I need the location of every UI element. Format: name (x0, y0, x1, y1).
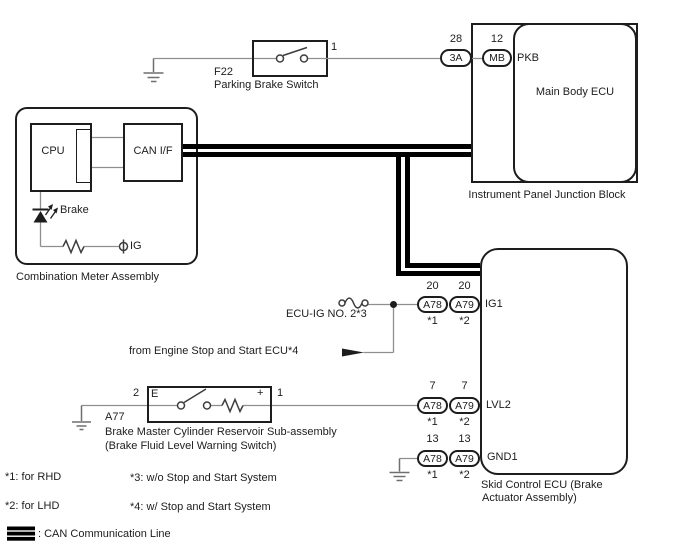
resistor-icon-meter (63, 241, 84, 253)
footnote-1: *1: for RHD (5, 471, 61, 483)
can-if-label: CAN I/F (123, 145, 183, 157)
resistor-icon-reservoir (222, 400, 243, 412)
reservoir-name-1: Brake Master Cylinder Reservoir Sub-asse… (105, 426, 337, 438)
ground-icon-reservoir (72, 406, 91, 430)
reservoir-pin-1: 1 (277, 387, 283, 399)
junction-dot (390, 301, 397, 308)
can-line-legend-icon (7, 527, 35, 541)
pin-gnd1-left: 13 (417, 433, 448, 445)
pin-gnd1-right: 13 (449, 433, 480, 445)
junction-block-label: Instrument Panel Junction Block (461, 189, 633, 201)
pin-ig1-right: 20 (449, 280, 480, 292)
parking-brake-switch-pin: 1 (331, 41, 337, 53)
parking-brake-switch-code: F22 (214, 66, 233, 78)
connector-a79-gnd1: A79 (449, 450, 480, 467)
main-body-ecu-label: Main Body ECU (513, 86, 637, 98)
connector-a78-ig1: A78 (417, 296, 448, 313)
reservoir-terminal-plus: + (257, 387, 263, 399)
note-ig1-left: *1 (417, 315, 448, 327)
legend-can-label: : CAN Communication Line (38, 528, 171, 540)
reservoir-name-2: (Brake Fluid Level Warning Switch) (105, 440, 276, 452)
ground-icon-gnd1 (390, 459, 410, 481)
note-ig1-right: *2 (449, 315, 480, 327)
cpu-label: CPU (30, 145, 76, 157)
reservoir-code: A77 (105, 411, 125, 423)
note-lvl2-left: *1 (417, 416, 448, 428)
pin-28: 28 (440, 33, 472, 45)
signal-pkb: PKB (517, 52, 539, 64)
pin-lvl2-left: 7 (417, 380, 448, 392)
can-branch-horizontal-outer (396, 271, 480, 276)
engine-ecu-note: from Engine Stop and Start ECU*4 (129, 345, 298, 357)
ground-icon-parking-brake (144, 59, 164, 82)
switch-icon-reservoir (178, 389, 211, 409)
footnote-3: *3: w/o Stop and Start System (130, 472, 277, 484)
skid-control-ecu-label-2: Actuator Assembly) (482, 492, 577, 504)
pin-ig1-left: 20 (417, 280, 448, 292)
reservoir-terminal-e: E (151, 388, 158, 400)
connector-a79-lvl2: A79 (449, 397, 480, 414)
can-line-bottom (183, 152, 471, 157)
connector-a79-ig1: A79 (449, 296, 480, 313)
led-icon-brake (33, 204, 59, 223)
can-communication-lines (183, 144, 480, 276)
parking-brake-switch-name: Parking Brake Switch (214, 79, 319, 91)
signal-gnd1: GND1 (487, 451, 518, 463)
connector-a78-lvl2: A78 (417, 397, 448, 414)
footnote-2: *2: for LHD (5, 500, 59, 512)
can-line-top (183, 144, 471, 149)
pin-lvl2-right: 7 (449, 380, 480, 392)
note-gnd1-left: *1 (417, 469, 448, 481)
ig-terminal-icon (120, 240, 128, 254)
combination-meter-label: Combination Meter Assembly (16, 271, 159, 283)
note-lvl2-right: *2 (449, 416, 480, 428)
connector-mb: MB (482, 49, 512, 67)
connector-3a: 3A (440, 49, 472, 67)
can-branch-horizontal-inner (405, 263, 480, 268)
connector-a78-gnd1: A78 (417, 450, 448, 467)
can-branch-vertical-inner (405, 152, 410, 268)
wiring-diagram: 3A MB A78 A79 A78 A79 A78 A79 F22 Parkin… (0, 0, 688, 560)
arrow-icon-engine-ecu (342, 349, 364, 357)
skid-control-ecu-label-1: Skid Control ECU (Brake (481, 479, 603, 491)
footnote-4: *4: w/ Stop and Start System (130, 501, 271, 513)
note-gnd1-right: *2 (449, 469, 480, 481)
wire-engine-ecu-branch (364, 305, 394, 353)
fuse-icon-ecu-ig (339, 298, 368, 308)
signal-ig1: IG1 (485, 298, 503, 310)
wire-led-resistor-ig (41, 223, 120, 247)
signal-lvl2: LVL2 (486, 399, 511, 411)
reservoir-pin-2: 2 (133, 387, 139, 399)
brake-indicator-label: Brake (60, 204, 89, 216)
can-branch-vertical-outer (396, 152, 401, 276)
ig-terminal-label: IG (130, 240, 142, 252)
pin-12: 12 (482, 33, 512, 45)
fuse-label: ECU-IG NO. 2*3 (286, 308, 367, 320)
switch-icon-parking-brake (277, 48, 308, 63)
